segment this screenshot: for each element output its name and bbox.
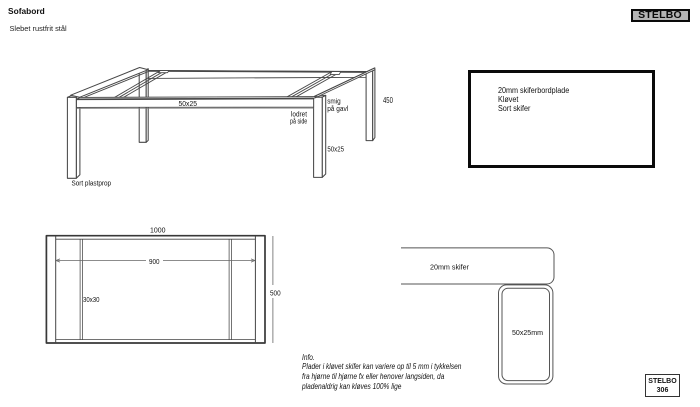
svg-text:Sort plastprop: Sort plastprop <box>72 178 112 187</box>
svg-text:på side: på side <box>290 117 307 126</box>
svg-text:900: 900 <box>149 257 160 266</box>
svg-text:20mm skifer: 20mm skifer <box>430 262 469 271</box>
svg-text:50x25mm: 50x25mm <box>512 328 543 337</box>
svg-text:500: 500 <box>270 288 281 297</box>
svg-text:på gavl: på gavl <box>327 104 348 113</box>
svg-text:450: 450 <box>383 96 393 105</box>
svg-text:30x30: 30x30 <box>83 295 100 304</box>
svg-text:50x25: 50x25 <box>179 99 198 108</box>
svg-text:1000: 1000 <box>150 225 166 234</box>
svg-text:50x25: 50x25 <box>327 144 344 153</box>
